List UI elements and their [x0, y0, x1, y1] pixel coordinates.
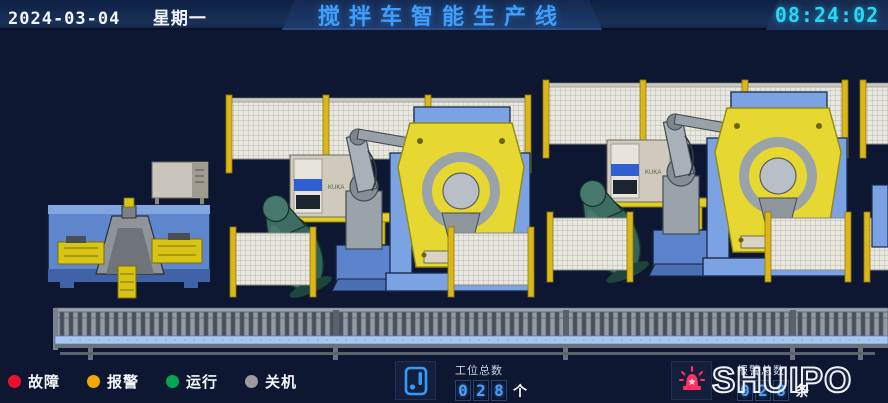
fault-dot [8, 375, 21, 388]
status-bar: 故障 报警 运行 关机 工位总数 [0, 360, 888, 403]
roller-conveyor [53, 308, 888, 360]
run-label: 运行 [186, 371, 218, 392]
legend-item-alarm: 报警 [87, 371, 139, 392]
edge-machine-sliver [872, 185, 888, 247]
production-line-scene: KUKA [0, 30, 888, 360]
shuipo-logo: SHUIPO [712, 361, 852, 401]
title-panel: 搅拌车智能生产线 [282, 0, 602, 30]
off-label: 关机 [265, 371, 297, 392]
left-fixture-station [48, 162, 210, 298]
weekday-text: 星期一 [153, 9, 207, 29]
page-title: 搅拌车智能生产线 [318, 0, 566, 31]
alarm-dot [87, 375, 100, 388]
station-counter: 工位总数 0 2 8 个 [455, 362, 527, 401]
status-legend: 故障 报警 运行 关机 [8, 360, 297, 403]
welding-jig [48, 198, 210, 298]
alarm-beacon-icon [678, 366, 706, 396]
alarm-icon-panel [671, 361, 712, 400]
hmi-dashboard: 2024-03-04 星期一 搅拌车智能生产线 08:24:02 [0, 0, 888, 403]
control-box [152, 162, 208, 205]
station-icon-panel [395, 361, 436, 400]
date-text: 2024-03-04 [8, 9, 120, 29]
off-dot [245, 375, 258, 388]
fault-label: 故障 [28, 371, 60, 392]
station-counter-unit: 个 [513, 381, 527, 401]
station-digit: 2 [473, 380, 489, 401]
legend-item-off: 关机 [245, 371, 297, 392]
robot-cell-3-partial [860, 80, 888, 288]
station-counter-label: 工位总数 [455, 362, 527, 378]
station-digit: 8 [491, 380, 507, 401]
run-dot [166, 375, 179, 388]
robot-cell-2 [543, 80, 851, 288]
alarm-label: 报警 [107, 371, 139, 392]
legend-item-run: 运行 [166, 371, 218, 392]
date-weekday: 2024-03-04 星期一 [8, 4, 207, 29]
workstation-icon [403, 366, 429, 396]
time-panel: 08:24:02 [766, 0, 888, 30]
station-digit: 0 [455, 380, 471, 401]
legend-item-fault: 故障 [8, 371, 60, 392]
robot-cell-1 [226, 95, 534, 303]
header-bar: 2024-03-04 星期一 搅拌车智能生产线 08:24:02 [0, 0, 888, 30]
clock-text: 08:24:02 [775, 3, 879, 27]
